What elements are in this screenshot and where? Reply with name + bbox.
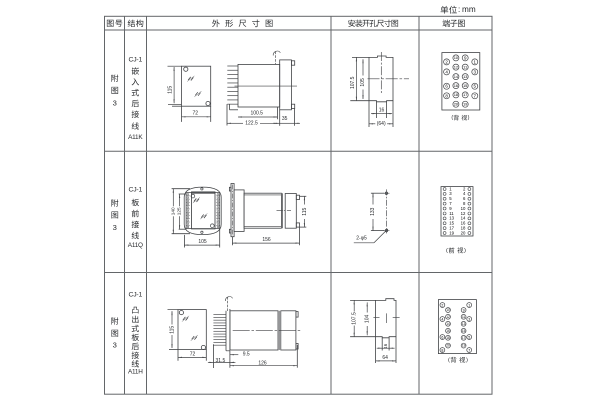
svg-text:17: 17	[462, 336, 466, 340]
svg-text:(: (	[446, 248, 448, 254]
svg-text:4: 4	[441, 317, 443, 321]
svg-text:A11K: A11K	[128, 134, 143, 141]
svg-text:19: 19	[449, 230, 454, 235]
svg-text:126: 126	[258, 361, 267, 367]
svg-text:104: 104	[364, 315, 370, 324]
svg-text:72: 72	[190, 352, 196, 358]
svg-text:16: 16	[446, 329, 450, 333]
svg-text:13: 13	[462, 322, 466, 326]
svg-text:11: 11	[463, 64, 467, 69]
svg-text:3: 3	[113, 341, 117, 350]
svg-text:5: 5	[468, 335, 470, 339]
svg-text:3: 3	[113, 223, 117, 232]
svg-text:6: 6	[441, 335, 443, 339]
svg-text::: :	[458, 5, 460, 14]
svg-text:31.5: 31.5	[216, 358, 226, 364]
svg-text:A11Q: A11Q	[128, 242, 143, 249]
svg-text:156: 156	[262, 237, 271, 243]
svg-text:14: 14	[446, 322, 450, 326]
svg-text:(: (	[448, 357, 450, 363]
svg-text:7: 7	[468, 348, 470, 352]
svg-text:8: 8	[441, 348, 443, 352]
svg-text:11: 11	[462, 315, 466, 319]
svg-text:19: 19	[462, 344, 466, 348]
svg-text:18: 18	[446, 336, 450, 340]
svg-text:(: (	[451, 115, 453, 121]
svg-text:CJ-1: CJ-1	[129, 56, 143, 63]
svg-text:3: 3	[468, 317, 470, 321]
svg-text:): )	[466, 357, 468, 363]
svg-text:15: 15	[462, 329, 466, 333]
svg-text:17: 17	[463, 92, 467, 97]
svg-text:140: 140	[170, 207, 175, 215]
svg-text:16: 16	[383, 343, 388, 348]
svg-text:16: 16	[379, 107, 385, 113]
svg-text:CJ-1: CJ-1	[129, 186, 143, 193]
svg-text:10: 10	[446, 308, 450, 312]
svg-text:100.5: 100.5	[250, 110, 263, 116]
svg-text:115: 115	[169, 326, 175, 334]
svg-text:125: 125	[177, 207, 182, 215]
svg-text:12: 12	[446, 315, 450, 319]
svg-text:9: 9	[463, 308, 465, 312]
svg-text:35: 35	[282, 116, 288, 122]
svg-text:133: 133	[370, 207, 376, 216]
svg-text:): )	[468, 115, 470, 121]
svg-text:105: 105	[198, 239, 207, 245]
svg-text:2-φ5: 2-φ5	[356, 236, 367, 242]
svg-text:CJ-1: CJ-1	[129, 292, 143, 299]
svg-text:9.5: 9.5	[243, 352, 250, 358]
svg-text:20: 20	[461, 230, 466, 235]
svg-text:): )	[464, 248, 466, 254]
svg-text:1: 1	[468, 303, 470, 307]
svg-text:115: 115	[168, 86, 174, 94]
svg-text:mm: mm	[462, 5, 476, 14]
svg-text:107.5: 107.5	[352, 312, 358, 325]
svg-text:105: 105	[360, 78, 366, 87]
svg-text:3: 3	[113, 98, 117, 107]
svg-text:20: 20	[446, 344, 450, 348]
svg-text:72: 72	[193, 111, 199, 117]
svg-text:(64): (64)	[377, 121, 386, 127]
svg-text:107.5: 107.5	[350, 76, 356, 89]
svg-text:122.5: 122.5	[245, 121, 258, 127]
svg-text:115: 115	[302, 208, 308, 216]
svg-text:12: 12	[454, 64, 458, 69]
svg-text:2: 2	[441, 303, 443, 307]
svg-text:64: 64	[382, 355, 388, 361]
svg-text:A11H: A11H	[128, 368, 143, 375]
